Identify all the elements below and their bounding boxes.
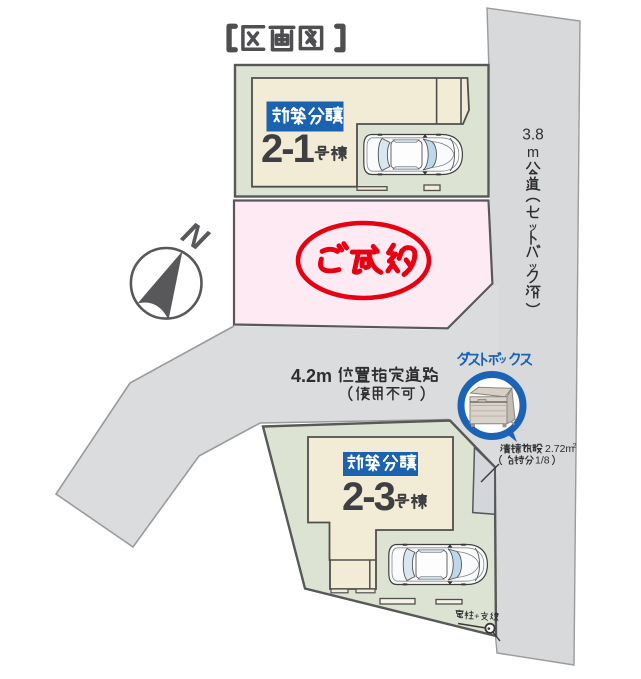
svg-text:4.2m: 4.2m	[291, 366, 332, 386]
svg-text:2.72m: 2.72m	[545, 443, 574, 455]
svg-text:m: m	[527, 145, 539, 161]
svg-text:2-3: 2-3	[342, 475, 395, 519]
svg-text:2-1: 2-1	[261, 127, 315, 171]
svg-text:3.8: 3.8	[522, 127, 544, 144]
svg-text:2: 2	[573, 443, 577, 450]
svg-text:+: +	[474, 611, 480, 621]
svg-text:1/8: 1/8	[535, 455, 550, 467]
